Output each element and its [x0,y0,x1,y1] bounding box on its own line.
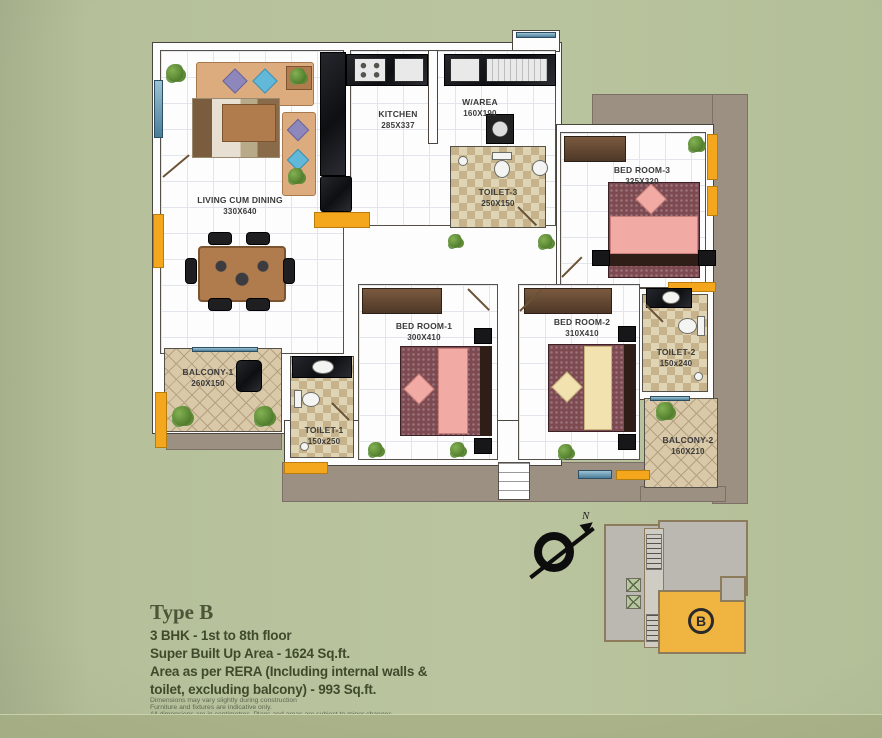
threshold-toilet1 [284,462,328,474]
floor-plan-page: LIVING CUM DINING 330X640 KITCHEN 285X33… [0,0,882,738]
nightstand-bedroom3-left [592,250,610,266]
dining-chair [185,258,197,284]
plant-balcony2 [656,402,674,420]
wardrobe-bedroom3 [564,136,626,162]
window-living-left [154,80,163,138]
wall-kitchen-warea [428,50,438,144]
room-label-toilet1: TOILET-1 150x250 [305,424,344,448]
room-dims: 250X150 [479,198,518,210]
exterior-wall-bottom [282,462,654,502]
room-name: BALCONY-2 [663,434,714,446]
window-sill-left-upper [153,214,164,268]
headboard-bedroom2 [624,344,636,432]
toilet2-bowl-icon [678,318,697,334]
room-label-bedroom1: BED ROOM-1 300X410 [396,320,452,344]
room-dims: 150x250 [305,436,344,448]
plant-balcony1-left [172,406,192,426]
headboard-bedroom3 [608,254,700,266]
toilet3-bowl-icon [494,160,510,178]
window-bedroom2-glass [578,470,612,479]
nightstand-bedroom1-top [474,328,492,344]
plant-balcony1-right [254,406,274,426]
room-name: TOILET-1 [305,424,344,436]
keyplan-unit-notch [720,576,746,602]
toilet2-basin-icon [662,291,680,304]
dining-chair [208,298,232,311]
plant-living-topleft [166,64,184,82]
keyplan-lift-2 [626,595,641,609]
room-label-living: LIVING CUM DINING 330X640 [197,194,283,218]
window-bedroom3-upper [707,134,718,180]
plant-bedroom2 [558,444,573,459]
room-dims: 330X640 [197,206,283,218]
dining-chair [208,232,232,245]
room-name: BED ROOM-1 [396,320,452,332]
compass-north-label: N [582,510,589,522]
wardrobe-bedroom1 [362,288,442,314]
room-name: TOILET-3 [479,186,518,198]
compass: N [524,516,604,596]
keyplan-unit-label: B [696,613,706,629]
room-name: BALCONY-1 [183,366,234,378]
disclaimer-1: Dimensions may vary slightly during cons… [150,697,297,704]
plant-toilet3-below [448,234,462,248]
blanket-bedroom2 [584,346,612,430]
keyplan-unit-badge: B [688,608,714,634]
fridge [320,176,352,212]
room-name: W/AREA [462,96,498,108]
toilet1-bowl-icon [302,392,320,407]
room-label-bedroom2: BED ROOM-2 310X410 [554,316,610,340]
room-label-toilet3: TOILET-3 250X150 [479,186,518,210]
shaft-window [516,32,556,38]
toilet3-shower-icon [458,156,468,166]
entry-steps [498,462,530,500]
room-label-balcony2: BALCONY-2 160X210 [663,434,714,458]
headboard-bedroom1 [480,346,492,436]
toilet3-tank [492,152,512,160]
room-dims: 310X410 [554,328,610,340]
info-line-rera-2: toilet, excluding balcony) - 993 Sq.ft. [150,682,376,697]
room-name: TOILET-2 [657,346,696,358]
room-label-kitchen: KITCHEN 285X337 [378,108,417,132]
threshold-kitchen [314,212,370,228]
exterior-wall-top-bedroom3 [592,94,722,128]
nightstand-bedroom3-right [698,250,716,266]
info-line-sba: Super Built Up Area - 1624 Sq.ft. [150,646,350,661]
room-dims: 260X150 [183,378,234,390]
balcony1-utility [236,360,262,392]
toilet1-basin-icon [312,360,334,374]
toilet2-shower-icon [694,372,703,381]
room-name: KITCHEN [378,108,417,120]
room-name: BED ROOM-2 [554,316,610,328]
nightstand-bedroom2-top [618,326,636,342]
plant-bedroom3 [688,136,704,152]
window-sill-left-lower [155,392,167,448]
plant-bedroom1-left [368,442,383,457]
room-dims: 300X410 [396,332,452,344]
dining-chair [283,258,295,284]
exterior-wall-under-balcony2 [640,486,726,502]
plant-living-mid [288,168,304,184]
keyplan-stairs-top [646,534,662,570]
drainboard-icon [486,58,548,82]
toilet1-tank [294,390,302,408]
plant-bedroom1-right [450,442,465,457]
room-label-warea: W/AREA 160X190 [462,96,498,120]
disclaimer-2: Furniture and fixtures are indicative on… [150,704,272,711]
coffee-table [222,104,276,142]
info-line-bhk: 3 BHK - 1st to 8th floor [150,628,291,643]
toilet3-basin-icon [532,160,548,176]
window-bedroom3-lower [707,186,718,216]
tv-unit-column [320,52,346,176]
plan-type-title: Type B [150,600,213,625]
keyplan: B [600,516,752,658]
plant-corner-table [290,68,306,84]
kitchen-sink-icon [394,58,424,82]
stove-icon [354,58,386,82]
room-dims: 160X190 [462,108,498,120]
dining-table [198,246,286,302]
nightstand-bedroom1-bottom [474,438,492,454]
blanket-bedroom1 [438,348,468,434]
footer-strip [0,714,882,738]
room-label-bedroom3: BED ROOM-3 325X320 [614,164,670,188]
nightstand-bedroom2-bottom [618,434,636,450]
plant-corridor [538,234,553,249]
room-label-toilet2: TOILET-2 150x240 [657,346,696,370]
info-line-rera-1: Area as per RERA (Including internal wal… [150,664,427,679]
room-dims: 150x240 [657,358,696,370]
room-dims: 160X210 [663,446,714,458]
room-dims: 285X337 [378,120,417,132]
warea-sink-icon [450,58,480,82]
room-name: LIVING CUM DINING [197,194,283,206]
toilet2-tank [697,316,705,336]
room-name: BED ROOM-3 [614,164,670,176]
window-bedroom2-bottom [616,470,650,480]
blanket-bedroom3 [610,216,698,254]
slider-balcony2 [650,396,690,401]
room-dims: 325X320 [614,176,670,188]
dining-chair [246,232,270,245]
slider-balcony1 [192,347,258,352]
keyplan-lift-1 [626,578,641,592]
dining-chair [246,298,270,311]
room-label-balcony1: BALCONY-1 260X150 [183,366,234,390]
